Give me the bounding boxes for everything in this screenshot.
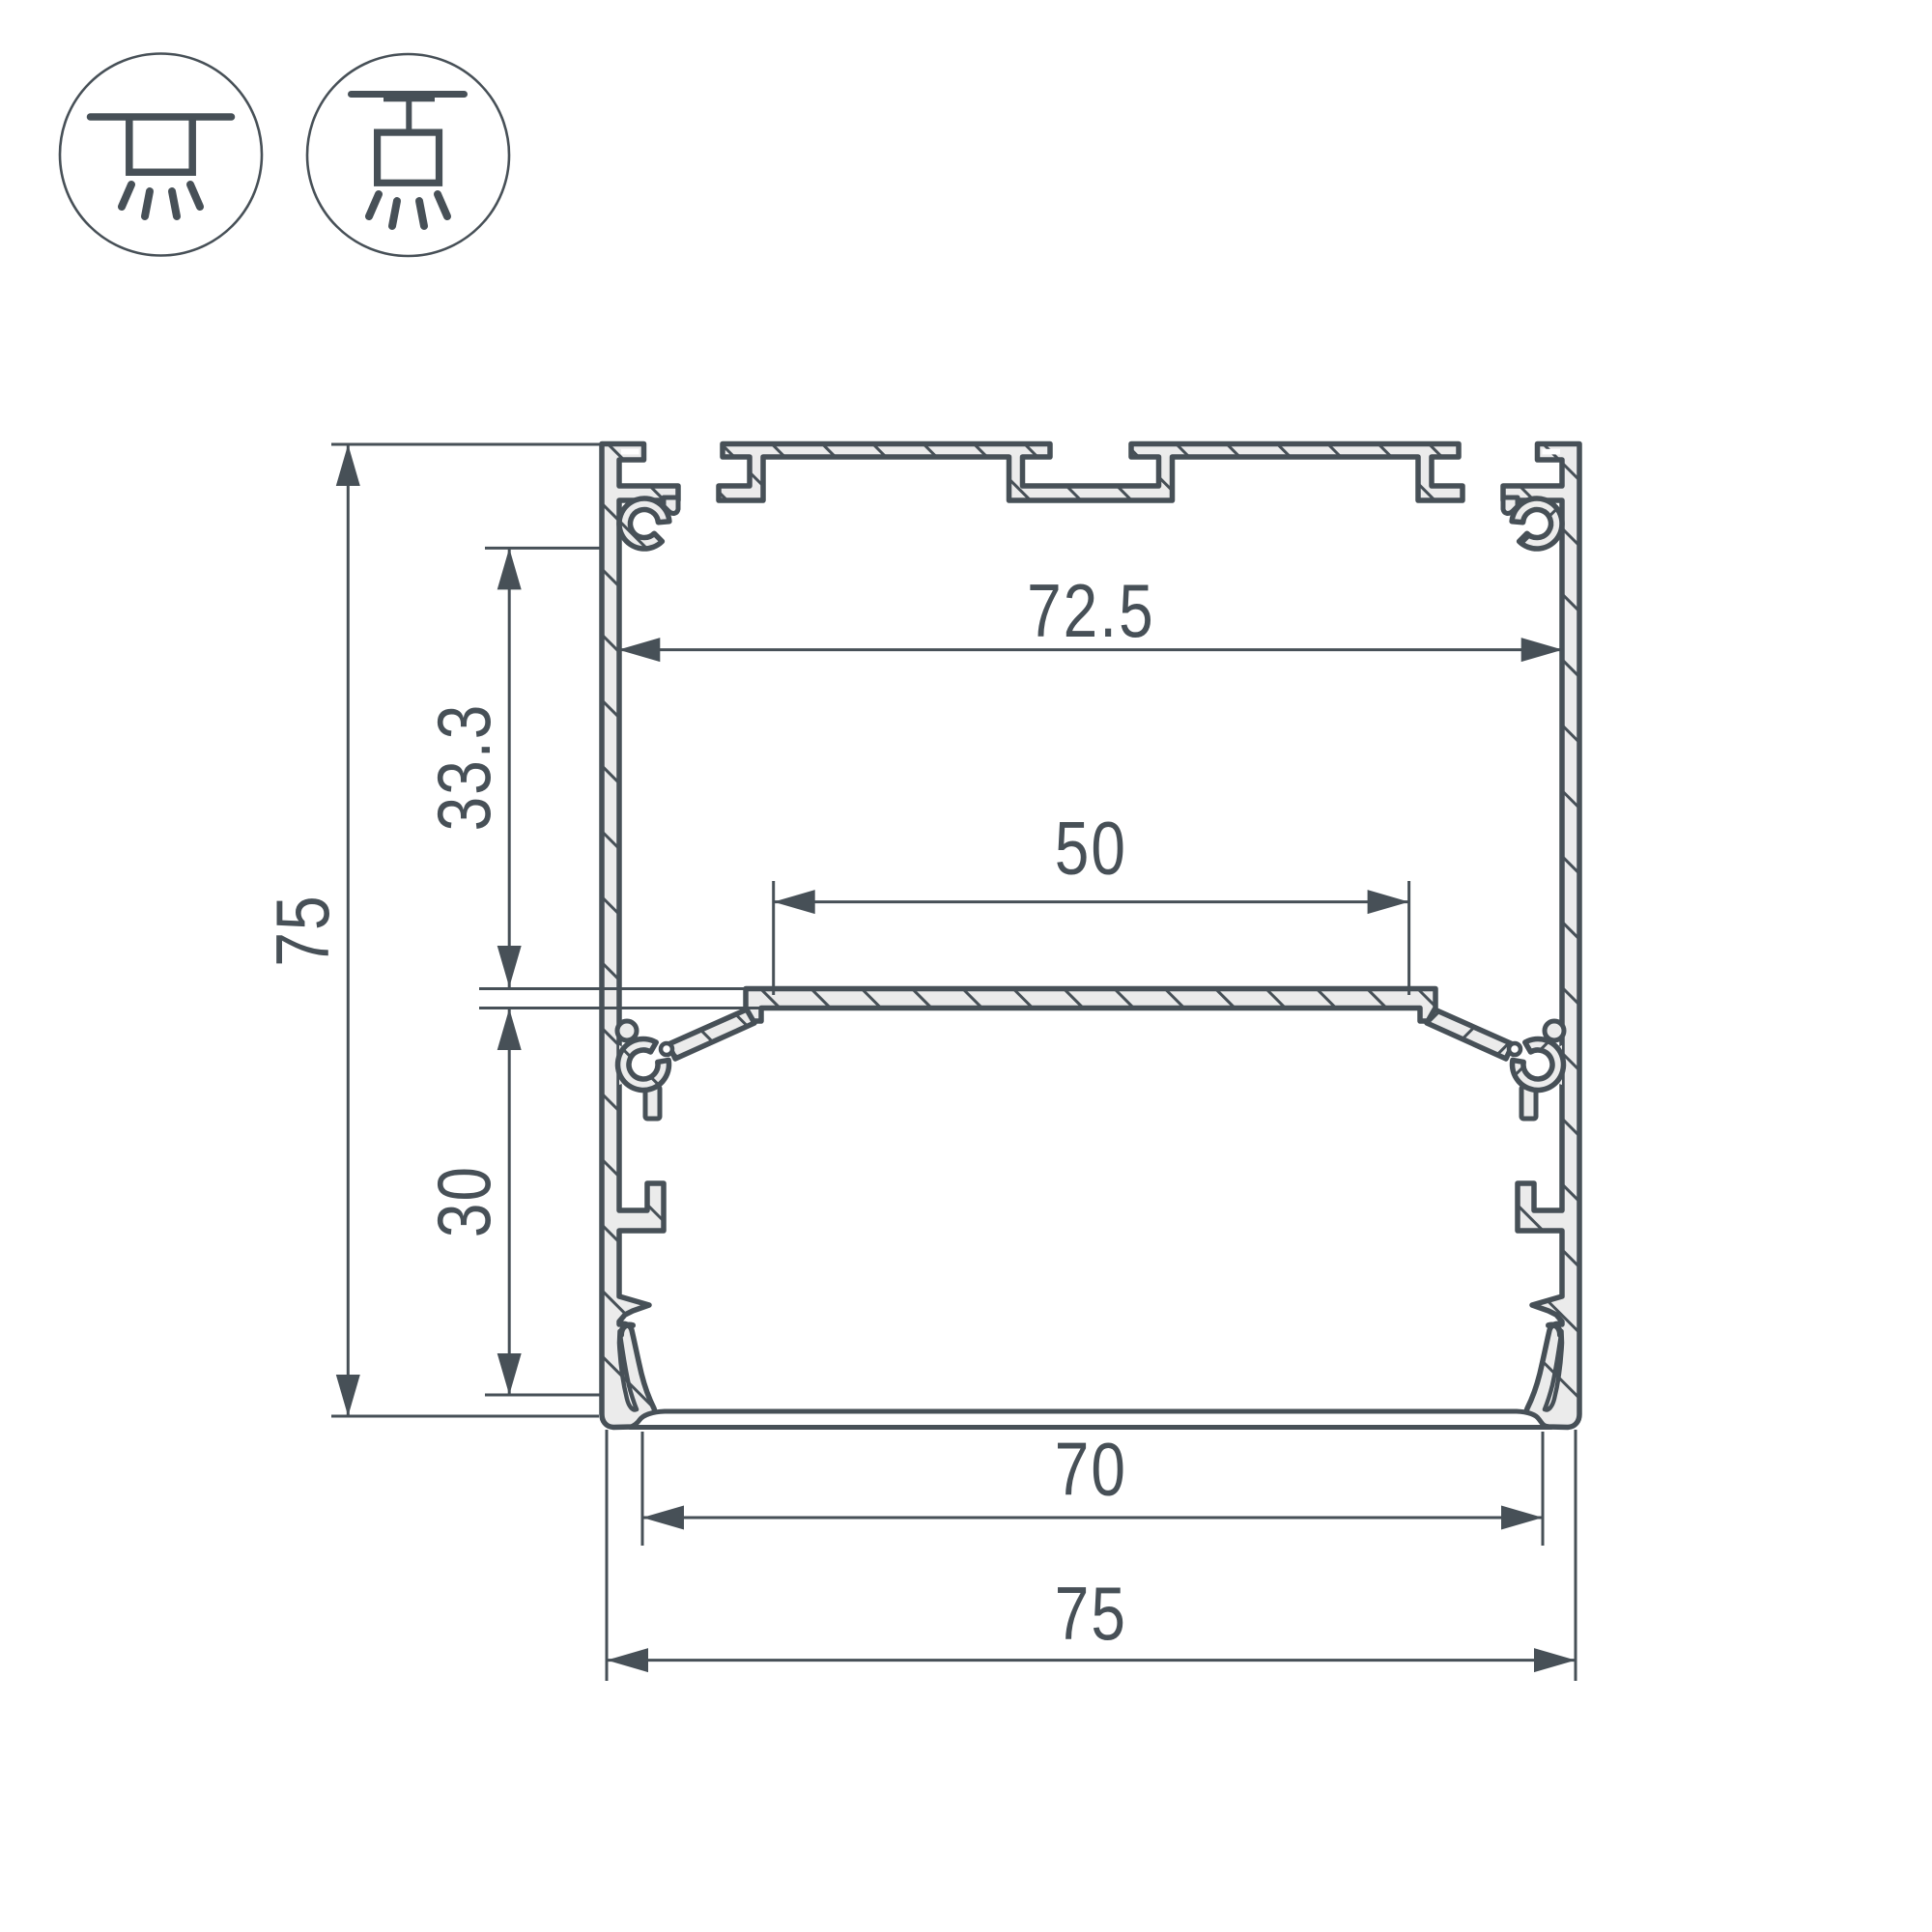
svg-text:70: 70 xyxy=(1055,1428,1127,1512)
svg-text:72.5: 72.5 xyxy=(1027,569,1155,653)
svg-text:75: 75 xyxy=(1055,1572,1127,1656)
svg-text:75: 75 xyxy=(261,894,345,966)
svg-text:30: 30 xyxy=(422,1165,506,1237)
svg-text:50: 50 xyxy=(1055,807,1127,891)
svg-text:33.3: 33.3 xyxy=(422,703,506,832)
